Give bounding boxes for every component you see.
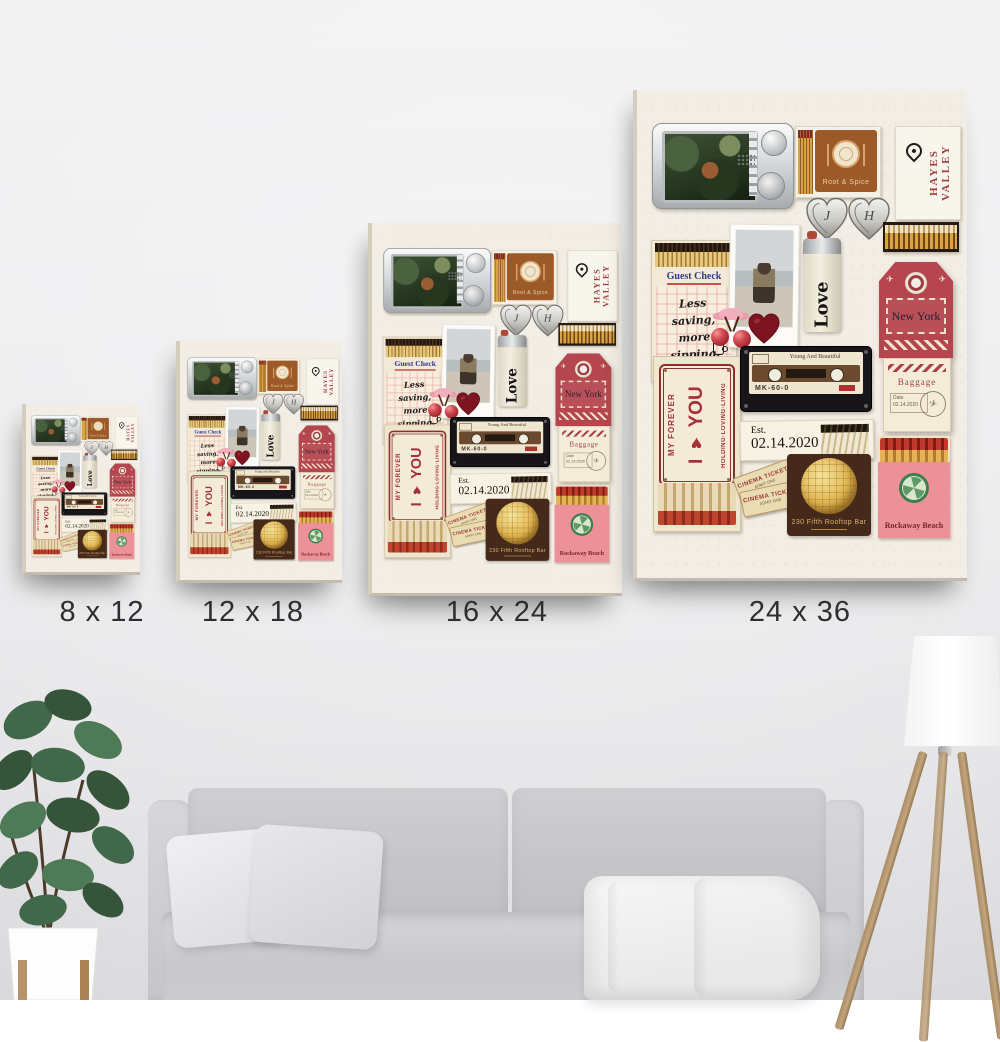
- plate-icon: [93, 421, 103, 431]
- luggage-tag-top: ✈ ✈ New York: [110, 463, 136, 496]
- restaurant-name: Root & Spice: [815, 179, 877, 186]
- date-label: Date: [893, 395, 904, 401]
- rockaway-beach-matchbox: Rockaway Beach: [109, 524, 134, 559]
- baggage-label: Baggage: [884, 377, 950, 387]
- my-forever-matchbox: MY FOREVER I ♥ YOU HOLDING·LOVING·LIVING: [653, 356, 741, 532]
- cassette-model: MK-60-0: [238, 486, 255, 489]
- couple-silhouette: [237, 426, 248, 446]
- cherry-icon: [428, 403, 442, 417]
- cherry-icon: [216, 458, 225, 467]
- matchsticks: [494, 253, 505, 301]
- matchsticks: [821, 424, 870, 455]
- pink-matchbox: Rockaway Beach: [109, 533, 134, 559]
- camera-dial-icon: [466, 253, 486, 273]
- my-forever-label: MY FOREVER: [36, 502, 39, 537]
- heart-icon: [747, 312, 781, 346]
- red-heart-sticker: [234, 450, 251, 467]
- red-tip-matchsticks: [658, 483, 736, 525]
- chevron-stripes: [301, 464, 332, 469]
- plate-icon: [276, 366, 290, 380]
- lamp-leg: [957, 751, 1000, 1039]
- ticket-subtitle: ADMIT ONE: [68, 545, 76, 548]
- collage-holder: Root & Spice HAYES VALLEY J H: [637, 90, 967, 578]
- lighter-metal-cap: [803, 238, 841, 254]
- screw-icon: [232, 468, 234, 470]
- hayes-valley-card: HAYES VALLEY: [115, 416, 138, 448]
- screw-icon: [453, 420, 456, 423]
- lamp-leg: [834, 751, 927, 1031]
- guest-check-title: Guest Check: [31, 467, 60, 471]
- cassette-reel-icon: [71, 500, 76, 505]
- collage-holder: Root & Spice HAYES VALLEY J H: [26, 404, 140, 573]
- screw-icon: [232, 495, 234, 497]
- screw-icon: [224, 531, 225, 532]
- rooftop-bar-matchbox: 230 Fifth Rooftop Bar: [787, 454, 871, 536]
- plate-icon: [832, 140, 860, 168]
- rockaway-beach-name: Rockaway Beach: [298, 552, 333, 556]
- screw-icon: [57, 500, 58, 501]
- cassette-model: MK-60-0: [461, 446, 487, 451]
- rooftop-bar-name: 230 Fifth Rooftop Bar: [486, 548, 550, 553]
- screw-icon: [544, 420, 547, 423]
- city-label: New York: [886, 298, 946, 334]
- cassette-label: Young And Beautiful MK-60-0: [65, 495, 104, 510]
- restaurant-name: Root & Spice: [507, 290, 554, 295]
- cassette-title: Young And Beautiful: [246, 470, 289, 473]
- chevron-stripes: [113, 499, 133, 502]
- plane-icon: ✈: [112, 468, 115, 472]
- screw-icon: [744, 350, 748, 354]
- plane-stamp-icon: ✈: [123, 507, 134, 518]
- est-date-text: Est. 02.14.2020: [458, 476, 510, 498]
- lamp-leg: [919, 752, 948, 1042]
- baggage-tag-bottom: Baggage Date 02.14.2020 ✈: [883, 358, 951, 432]
- date-value: 02.14.2020: [893, 402, 918, 408]
- disco-ball-icon: [260, 521, 287, 548]
- digital-camera: [383, 248, 491, 313]
- couple-silhouette: [66, 464, 74, 478]
- heart-icon: [455, 391, 481, 417]
- red-tip-matchsticks: [388, 521, 447, 553]
- baggage-tag-bottom: Baggage Date 02.14.2020 ✈: [558, 426, 610, 482]
- camera-wheel-icon: [463, 285, 484, 306]
- tape-window: [77, 500, 91, 503]
- rooftop-bar-name: 230 Fifth Rooftop Bar: [787, 519, 871, 526]
- red-tip-matchsticks: [190, 534, 228, 555]
- holding-loving-living-label: HOLDING·LOVING·LIVING: [221, 480, 224, 530]
- love-lighter: Love: [803, 238, 841, 332]
- matchsticks: [386, 339, 445, 357]
- screw-icon: [440, 434, 442, 436]
- screw-icon: [440, 517, 442, 519]
- chevron-stripes: [888, 364, 946, 372]
- screw-icon: [727, 478, 730, 481]
- my-forever-matchbox: MY FOREVER I ♥ YOU HOLDING·LOVING·LIVING: [32, 496, 62, 557]
- tag-hole: [311, 430, 322, 441]
- pink-matchbox: Rockaway Beach: [298, 523, 333, 560]
- cassette-reel-icon: [93, 500, 98, 505]
- cassette-label: Young And Beautiful MK-60-0: [235, 469, 291, 490]
- lime-slice-icon: [115, 534, 129, 548]
- red-heart-sticker: [64, 481, 76, 493]
- city-label: New York: [112, 476, 133, 488]
- heart-locket-icons: J H: [499, 303, 566, 338]
- lighter-button: [263, 410, 268, 414]
- heart-locket-icons: J H: [84, 441, 114, 457]
- location-pin-icon: [903, 140, 926, 163]
- rooftop-bar-matchbox: 230 Fifth Rooftop Bar: [254, 519, 295, 559]
- red-tip-matchsticks: [556, 487, 608, 507]
- guest-check-title: Guest Check: [383, 360, 447, 368]
- cassette-band: [752, 365, 860, 382]
- digital-camera: [31, 415, 80, 445]
- holding-loving-living-label: HOLDING·LOVING·LIVING: [721, 374, 727, 476]
- date-label: Date: [566, 454, 574, 459]
- est-date: 02.14.2020: [751, 435, 819, 453]
- rockaway-beach-matchbox: Rockaway Beach: [555, 485, 610, 562]
- license-plate-sign: MY FOREVER I ♥ YOU HOLDING·LOVING·LIVING: [389, 431, 447, 523]
- chevron-stripes: [884, 340, 948, 350]
- couple-silhouette: [460, 354, 477, 385]
- matchbox-strip: [111, 450, 137, 460]
- collage-holder: Root & Spice HAYES VALLEY J H: [372, 223, 622, 593]
- pink-bow-icon: [719, 308, 743, 320]
- cassette-band: [66, 499, 103, 505]
- cassette-red-mark: [279, 486, 287, 489]
- collage-holder: Root & Spice HAYES VALLEY J H: [180, 341, 342, 580]
- knife-icon: [543, 264, 545, 281]
- pink-matchbox: Rockaway Beach: [878, 462, 950, 538]
- my-forever-label: MY FOREVER: [667, 374, 676, 476]
- rockaway-beach-name: Rockaway Beach: [109, 553, 134, 556]
- lighter-button: [501, 330, 509, 336]
- date-value: 02.14.2020: [114, 512, 123, 514]
- pink-matchbox: Rockaway Beach: [555, 505, 610, 563]
- disco-ball-icon: [496, 502, 538, 544]
- my-forever-label: MY FOREVER: [195, 480, 199, 530]
- hayes-valley-card: HAYES VALLEY: [567, 250, 617, 321]
- restaurant-matchbox-cover: Root & Spice: [815, 130, 877, 192]
- cassette-band: [459, 431, 541, 444]
- cassette-logo: [752, 354, 769, 364]
- lime-slice-icon: [306, 526, 326, 546]
- lime-slice-icon: [893, 467, 935, 509]
- cassette-logo: [459, 423, 472, 431]
- fork-icon: [273, 367, 274, 378]
- matchsticks: [798, 130, 813, 194]
- screw-icon: [193, 478, 194, 479]
- lime-slice-icon: [566, 509, 598, 541]
- plane-icon: ✈: [886, 274, 894, 285]
- love-label: Love: [266, 424, 276, 457]
- hayes-valley-card: HAYES VALLEY: [895, 126, 961, 220]
- est-date: 02.14.2020: [458, 484, 509, 498]
- camera-wheel-icon: [67, 432, 77, 442]
- fork-icon: [827, 144, 829, 166]
- my-forever-label: MY FOREVER: [395, 438, 402, 515]
- restaurant-name: Root & Spice: [87, 435, 108, 437]
- est-date-text: Est. 02.14.2020: [751, 424, 819, 453]
- cassette-logo: [236, 470, 244, 475]
- red-tip-matchsticks: [880, 438, 948, 464]
- screw-icon: [744, 404, 748, 408]
- screw-icon: [63, 494, 64, 495]
- camera-photo-screen: [192, 361, 239, 396]
- cassette-reel-icon: [275, 477, 282, 484]
- cassette-reel-icon: [830, 368, 844, 382]
- heart-lockets: J H: [84, 441, 114, 457]
- matchsticks: [259, 361, 266, 392]
- screw-icon: [664, 478, 667, 481]
- luggage-tag-top: ✈ ✈ New York: [555, 353, 611, 426]
- hayes-valley-label: HAYES VALLEY: [928, 133, 952, 213]
- lighter-metal-cap: [498, 335, 527, 347]
- matchbox-strip: [301, 406, 338, 421]
- new-york-luggage-tag: ✈ ✈ New York Baggage Date 02.14.2020 ✈: [110, 463, 136, 521]
- screw-icon: [291, 468, 293, 470]
- knife-icon: [863, 144, 865, 166]
- screw-icon: [864, 350, 868, 354]
- lighter-button: [85, 453, 88, 456]
- chevron-stripes: [303, 475, 331, 479]
- luggage-tag-top: ✈ ✈ New York: [299, 425, 335, 472]
- screw-icon: [664, 369, 667, 372]
- rockaway-beach-matchbox: Rockaway Beach: [298, 511, 333, 561]
- hayes-valley-card: HAYES VALLEY: [306, 359, 338, 405]
- screw-icon: [392, 434, 394, 436]
- date-value: 02.14.2020: [566, 459, 585, 464]
- holding-loving-living-label: HOLDING·LOVING·LIVING: [436, 438, 441, 515]
- couple-silhouette: [753, 263, 776, 303]
- tape-window: [485, 434, 515, 441]
- baggage-tag-bottom: Baggage Date 02.14.2020 ✈: [301, 472, 334, 508]
- fork-icon: [92, 423, 93, 431]
- sofa: [148, 782, 864, 1000]
- plane-icon: ✈: [561, 362, 567, 370]
- locket-initial-right: H: [863, 209, 875, 224]
- guest-check-title: Guest Check: [652, 271, 736, 282]
- cherry-icon: [711, 328, 729, 346]
- rooftop-bar-name: 230 Fifth Rooftop Bar: [78, 552, 107, 554]
- locket-initial-left: J: [824, 209, 831, 224]
- plane-icon: ✈: [302, 431, 306, 436]
- throw-blanket: [584, 876, 820, 1000]
- love-label: Love: [812, 260, 833, 328]
- locket-initial-right: H: [103, 446, 108, 451]
- cassette-red-mark: [96, 506, 102, 508]
- cassette-tape: Young And Beautiful MK-60-0: [62, 492, 108, 515]
- camera-speaker-grid: [61, 426, 67, 430]
- cassette-label: Young And Beautiful MK-60-0: [457, 421, 543, 453]
- digital-camera: [187, 357, 257, 399]
- knife-icon: [104, 423, 105, 431]
- canvas-12x18: Root & Spice HAYES VALLEY J H: [176, 341, 342, 583]
- locket-initial-right: H: [290, 400, 297, 407]
- cassette-model: MK-60-0: [67, 506, 79, 508]
- chevron-stripes: [559, 412, 607, 420]
- plane-icon: ✈: [600, 362, 606, 370]
- plane-icon: ✈: [328, 431, 332, 436]
- plate-icon: [520, 261, 541, 282]
- plane-icon: ✈: [938, 274, 946, 285]
- heart-locket-icons: J H: [805, 196, 893, 242]
- tag-hole: [905, 272, 927, 294]
- location-pin-icon: [310, 365, 321, 376]
- camera-dial-icon: [241, 361, 254, 374]
- screw-icon: [392, 517, 394, 519]
- guest-check-title: Guest Check: [187, 430, 228, 435]
- love-lighter: Love: [498, 335, 527, 406]
- matchsticks: [270, 505, 294, 520]
- lighter-button: [807, 231, 817, 239]
- matchsticks: [189, 416, 227, 428]
- camera-photo-screen: [35, 418, 68, 443]
- baggage-label: Baggage: [559, 440, 609, 448]
- new-york-luggage-tag: ✈ ✈ New York Baggage Date 02.14.2020 ✈: [879, 262, 953, 430]
- cassette-reel-icon: [768, 368, 782, 382]
- matchbox-strip: [883, 222, 959, 252]
- screw-icon: [63, 512, 64, 513]
- camera-photo-screen: [391, 254, 464, 309]
- cassette-band: [236, 476, 289, 484]
- cassette-red-mark: [525, 446, 537, 451]
- red-heart-sticker: [455, 391, 481, 417]
- collage-artwork: Root & Spice HAYES VALLEY J H: [637, 90, 967, 578]
- lamp-shade: [904, 636, 1000, 746]
- cassette-tape: Young And Beautiful MK-60-0: [450, 417, 550, 467]
- heart-icon: [234, 450, 251, 467]
- cassette-reel-icon: [244, 477, 251, 484]
- est-date: 02.14.2020: [65, 523, 88, 529]
- love-label: Love: [504, 352, 520, 404]
- chevron-stripes: [111, 490, 133, 493]
- disco-ball-icon: [801, 458, 857, 514]
- city-label: New York: [561, 381, 606, 408]
- cassette-label: Young And Beautiful MK-60-0: [749, 352, 863, 394]
- rockaway-beach-name: Rockaway Beach: [878, 521, 950, 530]
- camera-speaker-grid: [448, 271, 462, 280]
- matchsticks: [89, 519, 106, 530]
- cassette-reel-icon: [471, 433, 482, 444]
- camera-dial-icon: [761, 130, 787, 156]
- new-york-luggage-tag: ✈ ✈ New York Baggage Date 02.14.2020 ✈: [299, 425, 335, 507]
- matchbox-strip: [558, 323, 616, 346]
- cassette-title: Young And Beautiful: [474, 423, 541, 428]
- baggage-label: Baggage: [301, 482, 333, 487]
- rooftop-bar-matchbox: 230 Fifth Rooftop Bar: [486, 499, 550, 561]
- i-love-you-label: I ♥ YOU: [43, 501, 51, 539]
- red-heart-sticker: [747, 312, 781, 346]
- rockaway-beach-name: Rockaway Beach: [555, 550, 610, 557]
- license-plate-sign: MY FOREVER I ♥ YOU HOLDING·LOVING·LIVING: [659, 364, 735, 486]
- love-label: Love: [86, 463, 93, 486]
- hayes-valley-label: HAYES VALLEY: [127, 419, 135, 447]
- camera-dial-icon: [69, 418, 78, 427]
- matchsticks: [82, 418, 87, 440]
- cassette-title: Young And Beautiful: [72, 495, 102, 497]
- cassette-model: MK-60-0: [755, 385, 789, 392]
- screw-icon: [544, 461, 547, 464]
- cassette-tape: Young And Beautiful MK-60-0: [740, 346, 872, 412]
- est-date-text: Est. 02.14.2020: [236, 505, 269, 519]
- size-label-16x24: 16 x 24: [397, 596, 597, 629]
- my-forever-matchbox: MY FOREVER I ♥ YOU HOLDING·LOVING·LIVING: [188, 471, 231, 557]
- screw-icon: [453, 461, 456, 464]
- digital-camera: [652, 123, 794, 209]
- restaurant-matchbox-cover: Root & Spice: [267, 361, 297, 391]
- matchsticks: [655, 243, 733, 267]
- love-lighter: Love: [83, 455, 96, 487]
- holding-loving-living-label: HOLDING·LOVING·LIVING: [55, 502, 57, 537]
- disco-ball-icon: [83, 531, 102, 550]
- chevron-stripes: [562, 431, 606, 437]
- rooftop-bar-name: 230 Fifth Rooftop Bar: [254, 551, 295, 554]
- collage-artwork: Root & Spice HAYES VALLEY J H: [180, 341, 342, 580]
- room-scene: Root & Spice HAYES VALLEY J H: [0, 0, 1000, 1000]
- i-love-you-label: I ♥ YOU: [686, 370, 708, 480]
- ticket-subtitle: ADMIT ONE: [240, 540, 251, 545]
- cassette-title: Young And Beautiful: [771, 354, 859, 360]
- screw-icon: [104, 512, 105, 513]
- restaurant-name: Root & Spice: [267, 385, 297, 388]
- fork-icon: [516, 264, 518, 281]
- my-forever-matchbox: MY FOREVER I ♥ YOU HOLDING·LOVING·LIVING: [384, 425, 451, 558]
- baggage-tag-bottom: Baggage Date 02.14.2020 ✈: [111, 497, 134, 523]
- screw-icon: [104, 494, 105, 495]
- heart-lockets: J H: [262, 393, 305, 416]
- screw-icon: [727, 369, 730, 372]
- hayes-valley-label: HAYES VALLEY: [592, 256, 610, 317]
- new-york-luggage-tag: ✈ ✈ New York Baggage Date 02.14.2020 ✈: [555, 353, 611, 480]
- tag-hole: [119, 467, 127, 475]
- heart-lockets: J H: [499, 303, 566, 338]
- heart-locket-icons: J H: [262, 393, 305, 416]
- camera-speaker-grid: [229, 372, 238, 378]
- camera-photo-screen: [662, 131, 758, 203]
- i-love-you-label: I ♥ YOU: [204, 478, 215, 532]
- rooftop-bar-matchbox: 230 Fifth Rooftop Bar: [78, 530, 107, 558]
- pink-bow-icon: [434, 388, 452, 397]
- license-plate-sign: MY FOREVER I ♥ YOU HOLDING·LOVING·LIVING: [191, 475, 228, 535]
- heart-lockets: J H: [805, 196, 893, 242]
- knife-icon: [291, 367, 292, 378]
- restaurant-matchbox: Root & Spice: [81, 416, 111, 441]
- size-label-12x18: 12 x 18: [153, 596, 353, 629]
- lighter-metal-cap: [83, 455, 96, 461]
- city-label: New York: [302, 443, 331, 461]
- love-lighter: Love: [261, 414, 280, 460]
- cherry-icon: [52, 486, 58, 492]
- canvas-16x24: Root & Spice HAYES VALLEY J H: [368, 223, 622, 596]
- i-love-you-label: I ♥ YOU: [409, 435, 426, 518]
- plane-icon: ✈: [130, 468, 133, 472]
- tape-window: [253, 478, 273, 482]
- throw-pillow: [248, 824, 384, 951]
- heart-icon: [64, 481, 76, 493]
- tripod-floor-lamp: [840, 630, 1000, 1000]
- locket-initial-right: H: [543, 313, 553, 324]
- matchsticks: [511, 476, 548, 499]
- tape-window: [786, 369, 826, 378]
- canvas-8x12: Root & Spice HAYES VALLEY J H: [22, 404, 140, 575]
- baggage-label: Baggage: [111, 503, 134, 506]
- screw-icon: [864, 404, 868, 408]
- location-pin-icon: [118, 421, 126, 429]
- screw-icon: [193, 531, 194, 532]
- collage-artwork: Root & Spice HAYES VALLEY J H: [26, 404, 140, 573]
- restaurant-matchbox-cover: Root & Spice: [507, 253, 554, 300]
- hayes-valley-label: HAYES VALLEY: [323, 362, 335, 401]
